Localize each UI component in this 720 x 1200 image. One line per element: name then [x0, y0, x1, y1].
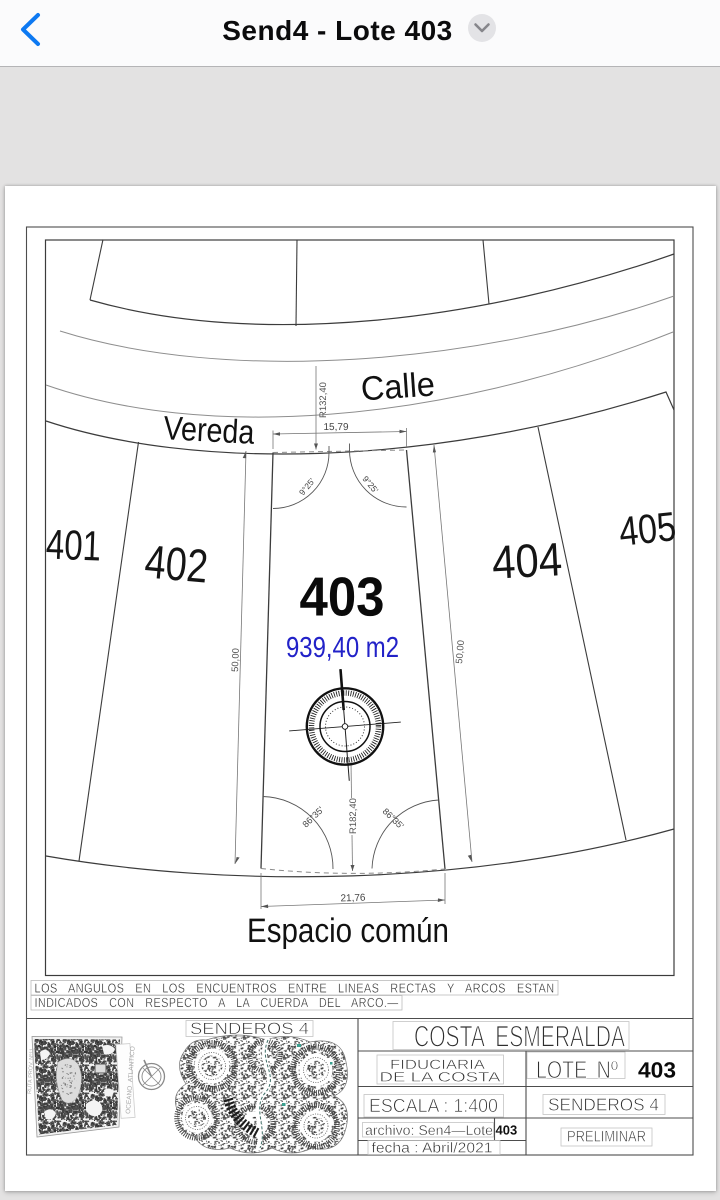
svg-text:ESCALA : 1:400: ESCALA : 1:400: [369, 1096, 498, 1117]
svg-text:401: 401: [45, 521, 102, 570]
svg-text:50,00: 50,00: [230, 648, 242, 672]
svg-text:R132,40: R132,40: [318, 382, 329, 418]
svg-text:403: 403: [300, 566, 385, 628]
svg-text:Vereda: Vereda: [163, 410, 256, 452]
svg-text:86°35': 86°35': [381, 806, 406, 831]
svg-text:fecha : Abril/2021: fecha : Abril/2021: [372, 1141, 493, 1157]
svg-text:86°35': 86°35': [300, 804, 325, 829]
svg-text:SENDEROS 4: SENDEROS 4: [190, 1020, 309, 1038]
svg-text:R182,40: R182,40: [348, 798, 359, 834]
svg-text:404: 404: [491, 532, 564, 589]
svg-text:LOTE Nº: LOTE Nº: [536, 1057, 618, 1084]
svg-text:archivo: Sen4—Lote: archivo: Sen4—Lote: [365, 1122, 493, 1138]
svg-text:INDICADOS CON RESPECTO A LA CU: INDICADOS CON RESPECTO A LA CUERDA DEL A…: [35, 995, 399, 1010]
svg-text:9°25': 9°25': [297, 476, 317, 497]
svg-text:PRELIMINAR: PRELIMINAR: [567, 1129, 646, 1146]
svg-text:939,40 m2: 939,40 m2: [286, 632, 399, 664]
svg-text:COSTA ESMERALDA: COSTA ESMERALDA: [414, 1021, 625, 1054]
svg-text:DE LA COSTA: DE LA COSTA: [380, 1070, 501, 1085]
svg-text:403: 403: [638, 1058, 676, 1083]
svg-text:402: 402: [143, 534, 210, 592]
svg-text:405: 405: [617, 503, 678, 555]
svg-text:SENDEROS 4: SENDEROS 4: [548, 1095, 659, 1115]
svg-text:Calle: Calle: [360, 365, 436, 408]
svg-text:LOS ANGULOS EN LOS ENCUENTROS: LOS ANGULOS EN LOS ENCUENTROS ENTRE LINE…: [35, 981, 555, 996]
svg-text:21,76: 21,76: [340, 893, 366, 905]
svg-text:50,00: 50,00: [454, 640, 467, 665]
svg-text:15,79: 15,79: [323, 422, 348, 433]
svg-text:9°25': 9°25': [360, 474, 380, 495]
svg-text:Espacio común: Espacio común: [247, 912, 449, 950]
svg-text:403: 403: [496, 1123, 518, 1138]
